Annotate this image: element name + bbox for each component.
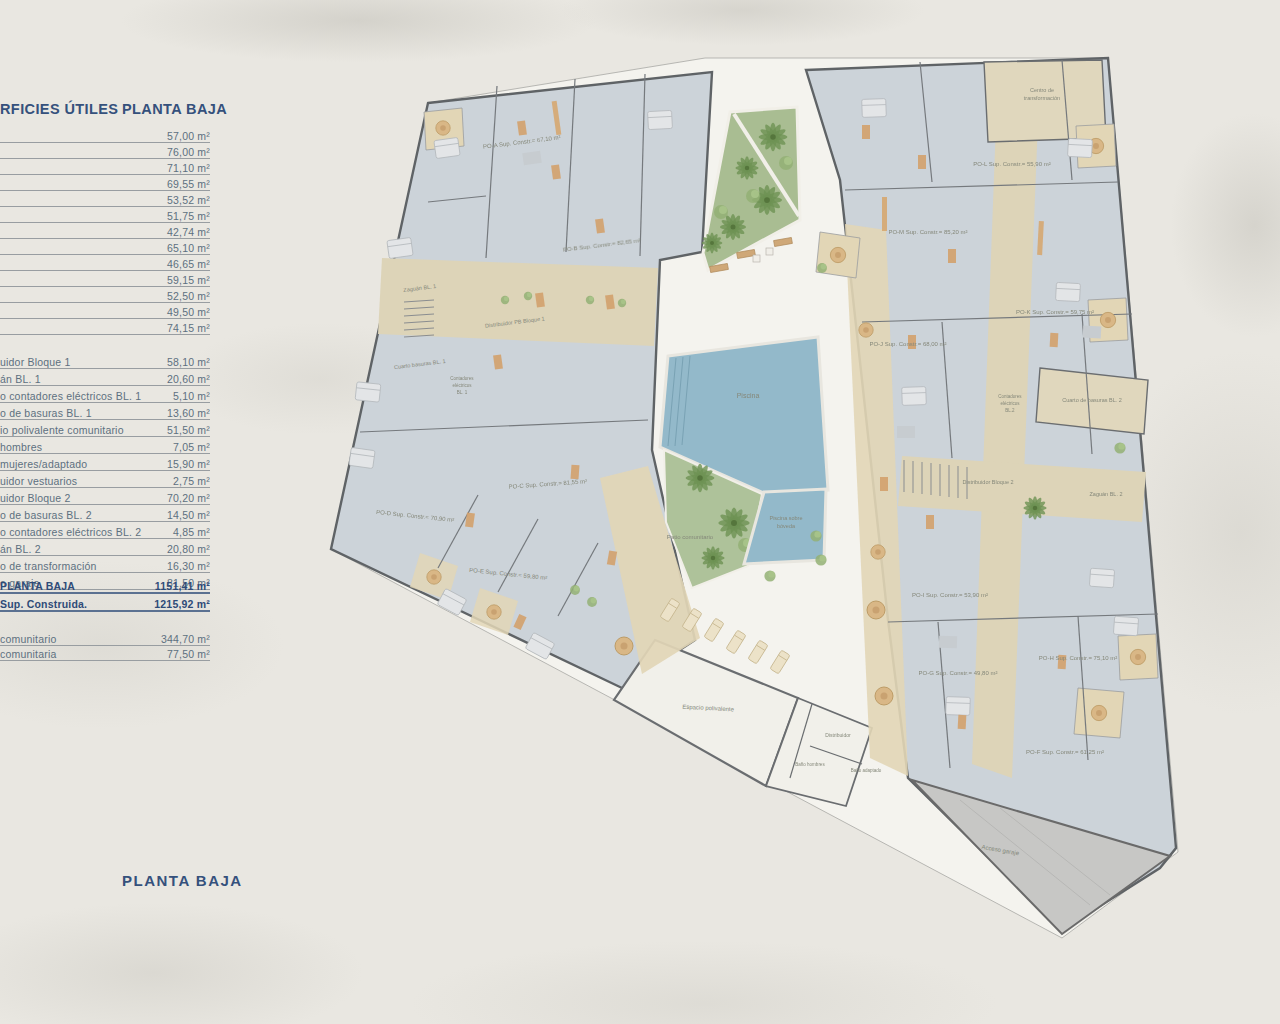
row-value: 5,10 m² [173, 390, 210, 402]
row-value: 344,70 m² [161, 633, 210, 645]
row-value: 14,50 m² [167, 509, 210, 521]
row-value: 51,50 m² [167, 424, 210, 436]
label-patio-comunitario: Patio comunitario [667, 534, 714, 540]
row-value: 57,00 m² [167, 130, 210, 142]
table-row: 65,10 m² [0, 239, 210, 255]
row-label: uidor Bloque 1 [0, 356, 71, 368]
label-piscina-boveda-line1: Piscina sobre [769, 515, 802, 521]
label-piscina: Piscina [737, 392, 760, 399]
table-row: o de transformación16,30 m² [0, 556, 210, 573]
row-label: án BL. 2 [0, 543, 41, 555]
room-label-transformacion-line2: transformación [1024, 95, 1060, 101]
table-row: 52,50 m² [0, 287, 210, 303]
row-label: o contadores eléctricos BL. 1 [0, 390, 141, 402]
room-label-distribuidor-2: Distribuidor Bloque 2 [962, 479, 1013, 485]
row-label: o de basuras BL. 1 [0, 407, 92, 419]
apartment-label-po-l: PO-L Sup. Constr.= 55,90 m² [973, 161, 1050, 167]
plan-caption: PLANTA BAJA [122, 872, 243, 889]
table-row: 71,10 m² [0, 159, 210, 175]
table-row: án BL. 220,80 m² [0, 539, 210, 556]
table-row: án BL. 120,60 m² [0, 369, 210, 386]
row-label: io polivalente comunitario [0, 424, 124, 436]
row-value: 7,05 m² [173, 441, 210, 453]
label-distribuidor-pb: Distribuidor [825, 732, 851, 738]
row-label: comunitario [0, 633, 56, 645]
row-label: o de transformación [0, 560, 97, 572]
room-label-transformacion-line1: Centro de [1030, 87, 1054, 93]
room-label-contadores-1-line1: Contadores [450, 376, 474, 381]
row-value: 13,60 m² [167, 407, 210, 419]
row-value: 53,52 m² [167, 194, 210, 206]
apartment-label-po-h: PO-H Sup. Constr.= 75,10 m² [1039, 655, 1118, 661]
row-label: uidor Bloque 2 [0, 492, 71, 504]
row-value: 4,85 m² [173, 526, 210, 538]
table-rows-common-areas: uidor Bloque 158,10 m²án BL. 120,60 m²o … [0, 352, 210, 590]
room-label-contadores-1-line2: eléctricos [452, 383, 472, 388]
table-row: Sup. Construida.1215,92 m² [0, 594, 210, 612]
row-value: 49,50 m² [167, 306, 210, 318]
row-value: 74,15 m² [167, 322, 210, 334]
table-row: PLANTA BAJA1151,41 m² [0, 576, 210, 594]
label-bano-adaptado: Baño adaptado [851, 768, 882, 773]
table-row: o contadores eléctricos BL. 15,10 m² [0, 386, 210, 403]
apartment-label-po-k: PO-K Sup. Constr.= 59,75 m² [1016, 309, 1094, 315]
table-row: 69,55 m² [0, 175, 210, 191]
table-row: mujeres/adaptado15,90 m² [0, 454, 210, 471]
row-value: 58,10 m² [167, 356, 210, 368]
table-row: 57,00 m² [0, 127, 210, 143]
table-row: o de basuras BL. 113,60 m² [0, 403, 210, 420]
label-piscina-boveda-line2: bóveda [777, 523, 796, 529]
table-rows-apartments: 57,00 m²76,00 m²71,10 m²69,55 m²53,52 m²… [0, 127, 210, 335]
apartment-label-po-g: PO-G Sup. Constr.= 49,80 m² [919, 670, 998, 676]
floor-plan-svg: PO-A Sup. Constr.= 67,10 m² PO-B Sup. Co… [320, 40, 1200, 950]
room-label-contadores-1-line3: BL. 1 [457, 390, 468, 395]
row-value: 1215,92 m² [154, 598, 210, 610]
row-value: 77,50 m² [167, 648, 210, 660]
row-value: 65,10 m² [167, 242, 210, 254]
row-value: 71,10 m² [167, 162, 210, 174]
table-row: 59,15 m² [0, 271, 210, 287]
table-rows-totals: PLANTA BAJA1151,41 m²Sup. Construida.121… [0, 576, 210, 612]
row-value: 2,75 m² [173, 475, 210, 487]
row-value: 20,60 m² [167, 373, 210, 385]
row-value: 69,55 m² [167, 178, 210, 190]
table-row: uidor Bloque 158,10 m² [0, 352, 210, 369]
label-bano-hombres: Baño hombres [795, 762, 825, 767]
room-label-zaguan-2: Zaguán BL. 2 [1089, 491, 1122, 497]
table-row: 46,65 m² [0, 255, 210, 271]
row-label: comunitaria [0, 648, 56, 660]
row-value: 70,20 m² [167, 492, 210, 504]
row-value: 42,74 m² [167, 226, 210, 238]
row-value: 15,90 m² [167, 458, 210, 470]
table-row: o contadores eléctricos BL. 24,85 m² [0, 522, 210, 539]
apartment-label-po-j: PO-J Sup. Constr.= 68,00 m² [869, 341, 946, 347]
row-value: 1151,41 m² [155, 580, 210, 592]
table-row: hombres7,05 m² [0, 437, 210, 454]
floor-plan: PO-A Sup. Constr.= 67,10 m² PO-B Sup. Co… [320, 40, 1200, 950]
row-value: 20,80 m² [167, 543, 210, 555]
table-row: comunitario344,70 m² [0, 631, 210, 646]
row-label: uidor vestuarios [0, 475, 77, 487]
table-row: o de basuras BL. 214,50 m² [0, 505, 210, 522]
table-row: io polivalente comunitario51,50 m² [0, 420, 210, 437]
row-value: 52,50 m² [167, 290, 210, 302]
table-row: 51,75 m² [0, 207, 210, 223]
row-label: án BL. 1 [0, 373, 41, 385]
room-label-contadores-2-line3: BL.2 [1005, 408, 1015, 413]
room-label-basuras-2: Cuarto de basuras BL. 2 [1062, 397, 1122, 403]
row-value: 16,30 m² [167, 560, 210, 572]
table-rows-community: comunitario344,70 m²comunitaria77,50 m² [0, 631, 210, 661]
table-title-superficies: RFICIES ÚTILES [0, 101, 118, 117]
table-row: 42,74 m² [0, 223, 210, 239]
row-label: o contadores eléctricos BL. 2 [0, 526, 141, 538]
row-label: o de basuras BL. 2 [0, 509, 92, 521]
room-label-contadores-2-line1: Contadores [998, 394, 1022, 399]
table-row: 53,52 m² [0, 191, 210, 207]
apartment-label-po-i: PO-I Sup. Constr.= 53,90 m² [912, 592, 988, 598]
row-label: hombres [0, 441, 42, 453]
table-row: uidor vestuarios2,75 m² [0, 471, 210, 488]
row-value: 76,00 m² [167, 146, 210, 158]
apartment-label-po-m: PO-M Sup. Constr.= 85,20 m² [888, 229, 967, 235]
row-value: 51,75 m² [167, 210, 210, 222]
table-row: 74,15 m² [0, 319, 210, 335]
row-value: 46,65 m² [167, 258, 210, 270]
table-row: comunitaria77,50 m² [0, 646, 210, 661]
table-row: 76,00 m² [0, 143, 210, 159]
page: { "panel": { "header": { "left": "RFICIE… [0, 0, 1280, 1024]
table-title-planta-baja: PLANTA BAJA [122, 101, 227, 117]
row-label: Sup. Construida. [0, 598, 87, 610]
row-label: mujeres/adaptado [0, 458, 87, 470]
room-label-contadores-2-line2: eléctricos [1000, 401, 1020, 406]
row-label: PLANTA BAJA [0, 580, 75, 592]
row-value: 59,15 m² [167, 274, 210, 286]
apartment-label-po-f: PO-F Sup. Constr.= 61,25 m² [1026, 749, 1104, 755]
table-row: uidor Bloque 270,20 m² [0, 488, 210, 505]
table-row: 49,50 m² [0, 303, 210, 319]
